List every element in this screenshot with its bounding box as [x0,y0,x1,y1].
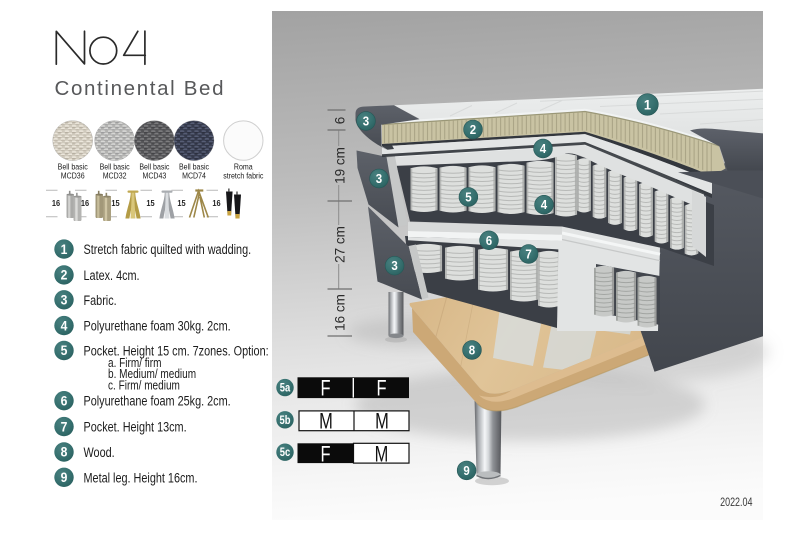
svg-text:M: M [375,442,389,467]
svg-text:Polyurethane foam 30kg. 2cm.: Polyurethane foam 30kg. 2cm. [84,318,231,334]
svg-text:MCD43: MCD43 [142,171,166,181]
svg-text:3: 3 [61,292,68,308]
svg-text:9: 9 [61,469,68,485]
svg-text:5c: 5c [280,446,291,459]
svg-text:6: 6 [486,233,493,248]
svg-text:5b: 5b [280,414,291,427]
svg-text:3: 3 [391,259,398,274]
svg-text:16: 16 [81,199,89,208]
svg-text:Pocket. Height 13cm.: Pocket. Height 13cm. [84,419,187,435]
svg-text:F: F [376,376,386,401]
svg-text:8: 8 [61,444,68,460]
svg-text:8: 8 [469,343,476,358]
svg-text:M: M [319,409,333,434]
svg-text:3: 3 [363,114,370,129]
svg-text:Fabric.: Fabric. [84,292,117,308]
svg-text:2: 2 [61,267,68,283]
svg-text:F: F [320,442,330,467]
svg-text:Latex. 4cm.: Latex. 4cm. [84,268,140,284]
svg-text:7: 7 [61,419,68,435]
svg-text:2022.04: 2022.04 [720,497,753,509]
svg-text:MCD74: MCD74 [182,171,206,181]
svg-text:2: 2 [470,123,477,138]
svg-text:16: 16 [52,199,60,208]
svg-text:15: 15 [111,199,120,208]
svg-text:5: 5 [465,190,472,205]
svg-text:c. Firm/ medium: c. Firm/ medium [108,378,180,393]
svg-text:M: M [375,409,389,434]
svg-text:Polyurethane foam 25kg. 2cm.: Polyurethane foam 25kg. 2cm. [84,393,231,409]
svg-text:4: 4 [540,142,547,157]
svg-text:Wood.: Wood. [84,445,115,461]
svg-text:16 cm: 16 cm [333,294,348,331]
svg-text:15: 15 [146,199,155,208]
svg-text:7: 7 [525,247,532,262]
svg-text:1: 1 [61,241,68,257]
svg-text:F: F [320,376,330,401]
svg-text:5: 5 [61,343,68,359]
svg-text:19 cm: 19 cm [333,147,348,184]
svg-text:Metal leg. Height 16cm.: Metal leg. Height 16cm. [84,470,198,486]
svg-text:3: 3 [376,172,383,187]
svg-text:Stretch fabric quilted with wa: Stretch fabric quilted with wadding. [84,242,252,258]
svg-text:5a: 5a [280,382,291,395]
svg-text:1: 1 [644,97,652,113]
svg-text:6: 6 [61,393,68,409]
svg-text:stretch fabric: stretch fabric [223,171,263,181]
svg-text:MCD32: MCD32 [103,171,127,181]
svg-text:16: 16 [212,199,220,208]
svg-text:4: 4 [541,198,548,213]
svg-text:Continental Bed: Continental Bed [55,77,226,100]
svg-text:MCD36: MCD36 [61,171,85,181]
svg-text:4: 4 [61,318,69,334]
svg-text:15: 15 [177,199,186,208]
svg-text:27 cm: 27 cm [333,226,348,263]
svg-text:6: 6 [333,117,348,125]
svg-text:9: 9 [463,463,470,478]
